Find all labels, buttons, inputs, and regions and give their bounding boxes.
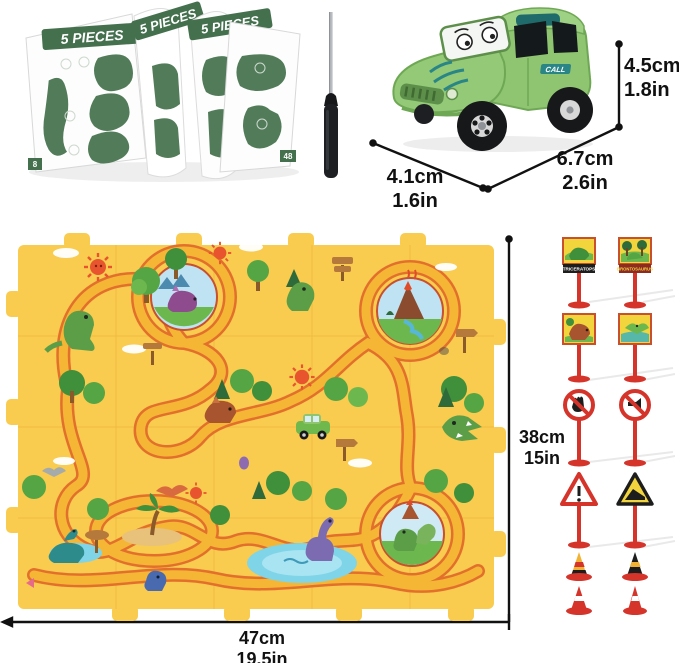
- traffic-cone-red-white: [566, 586, 592, 615]
- booklet-left-page: 5 PIECES 8: [26, 14, 146, 172]
- traffic-cone-yellow-red: [566, 552, 592, 581]
- triceratops-scene-circle: [151, 264, 217, 330]
- call-decal: CALL: [540, 64, 571, 74]
- car-width-cm: 4.1cm: [375, 166, 455, 190]
- dino-picture-sign-1: [563, 314, 595, 383]
- exclamation-warning-sign: [562, 474, 596, 549]
- triceratops-sign: TRICERATOPS: [563, 238, 596, 309]
- rear-wheel: [547, 87, 593, 133]
- headlight: [447, 89, 458, 100]
- booklet-page-number-left: 8: [33, 160, 38, 169]
- mat-width-in: 19.5in: [212, 649, 312, 663]
- mat-width-cm: 47cm: [212, 628, 312, 649]
- steep-grade-warning-sign: [618, 474, 652, 549]
- car-height-in: 1.8in: [624, 79, 679, 103]
- booklet-right-page: 48: [220, 22, 300, 172]
- call-decal-text: CALL: [545, 65, 567, 74]
- accessory-signs: TRICERATOPS BRONTOSAURUS: [543, 230, 675, 622]
- car-height-label: 4.5cm 1.8in: [624, 55, 679, 102]
- dino-egg: [239, 457, 249, 470]
- car-width-label: 4.1cm 1.6in: [375, 166, 455, 213]
- front-wheel: [457, 101, 507, 151]
- instruction-booklet: 5 PIECES 8 5 PIECES: [14, 0, 314, 195]
- car-length-in: 2.6in: [545, 172, 625, 196]
- triceratops-sign-label: TRICERATOPS: [563, 267, 596, 272]
- prohibition-hand-sign: [565, 391, 593, 467]
- brontosaurus-sign-label: BRONTOSAURUS: [617, 267, 653, 272]
- car-length-label: 6.7cm 2.6in: [545, 148, 625, 195]
- car-length-cm: 6.7cm: [545, 148, 625, 172]
- traffic-cone-black-yellow: [622, 552, 648, 581]
- puzzle-track-mat: [6, 231, 506, 623]
- mat-width-label: 47cm 19.5in: [212, 628, 312, 663]
- booklet-page-number-right: 48: [284, 152, 293, 161]
- product-dimension-image: 5 PIECES 8 5 PIECES: [0, 0, 679, 663]
- car-height-cm: 4.5cm: [624, 55, 679, 79]
- screwdriver: [316, 10, 346, 190]
- bat-silhouette: [439, 347, 449, 355]
- far-wheel: [414, 104, 434, 124]
- traffic-cone-red: [623, 586, 647, 615]
- toy-car: CALL: [378, 2, 610, 160]
- car-width-in: 1.6in: [375, 190, 455, 214]
